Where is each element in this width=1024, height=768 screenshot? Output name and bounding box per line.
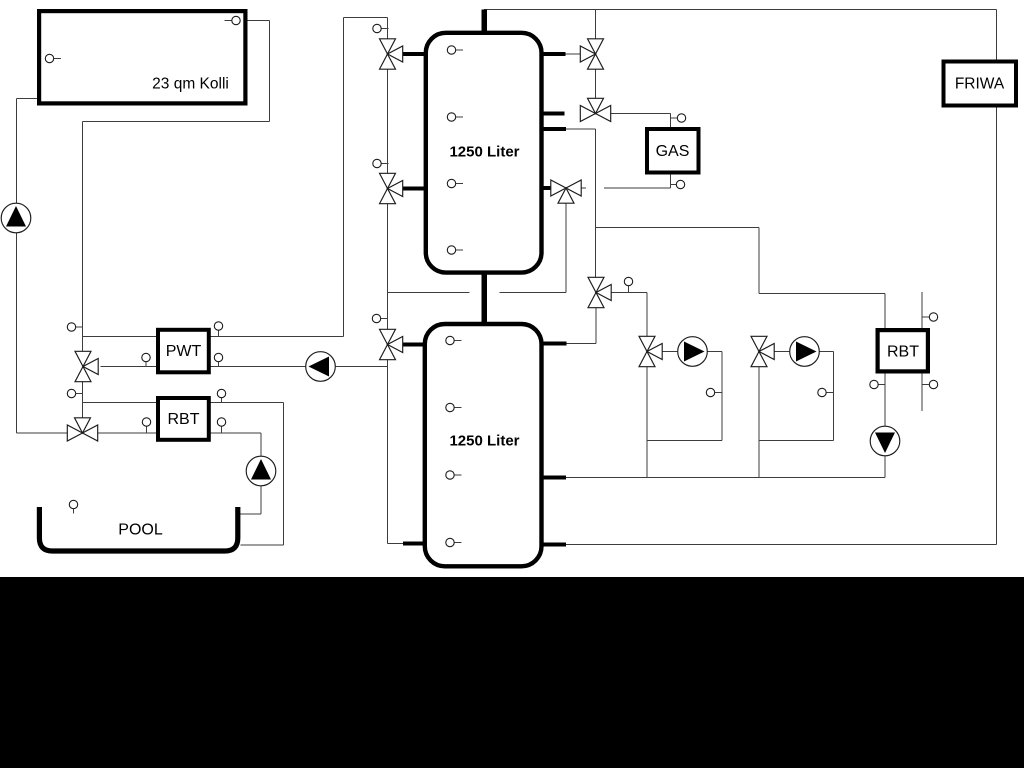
- svg-text:RBT: RBT: [887, 344, 919, 361]
- svg-text:1250 Liter: 1250 Liter: [449, 433, 519, 450]
- svg-text:POOL: POOL: [118, 522, 163, 539]
- svg-text:23 qm Kolli: 23 qm Kolli: [152, 76, 229, 93]
- svg-text:PWT: PWT: [166, 343, 202, 360]
- svg-text:RBT: RBT: [168, 411, 200, 428]
- svg-text:FRIWA: FRIWA: [955, 76, 1005, 93]
- svg-text:1250 Liter: 1250 Liter: [449, 144, 519, 161]
- svg-text:GAS: GAS: [656, 143, 690, 160]
